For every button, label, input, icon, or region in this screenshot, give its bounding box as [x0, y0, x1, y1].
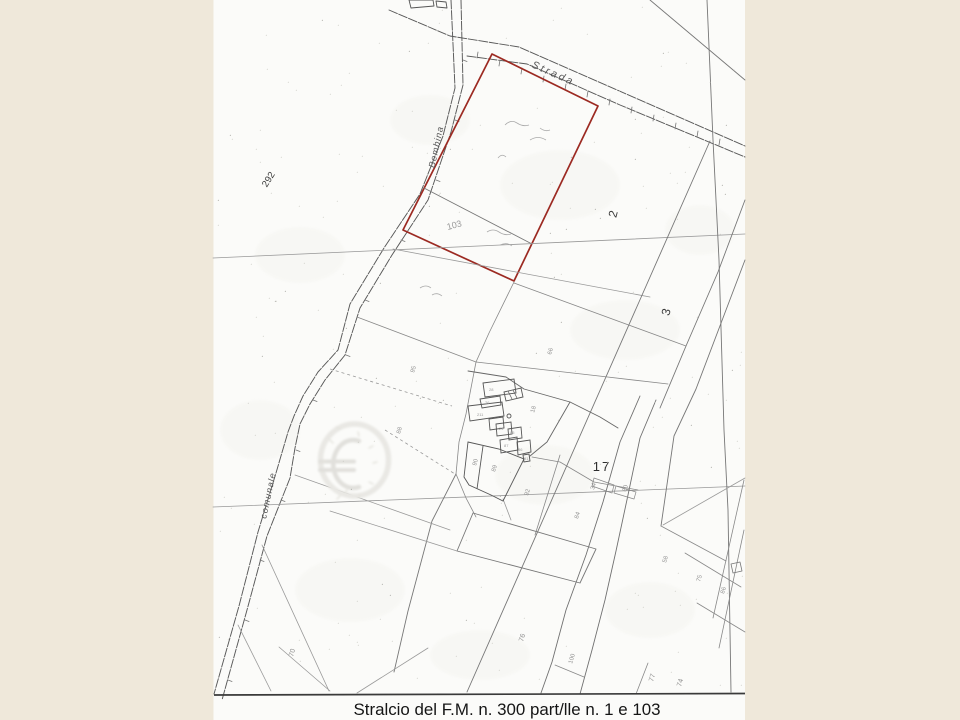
svg-text:86: 86: [518, 447, 523, 452]
svg-text:28: 28: [489, 387, 494, 392]
svg-text:17: 17: [593, 459, 611, 474]
svg-text:85: 85: [510, 430, 515, 435]
svg-text:24: 24: [499, 426, 504, 431]
svg-text:211: 211: [477, 412, 484, 417]
svg-text:26: 26: [485, 400, 490, 405]
svg-text:Stralcio del F.M. n. 300 part/: Stralcio del F.M. n. 300 part/lle n. 1 e…: [353, 700, 660, 719]
svg-text:87: 87: [504, 443, 509, 448]
svg-text:91: 91: [524, 456, 529, 461]
